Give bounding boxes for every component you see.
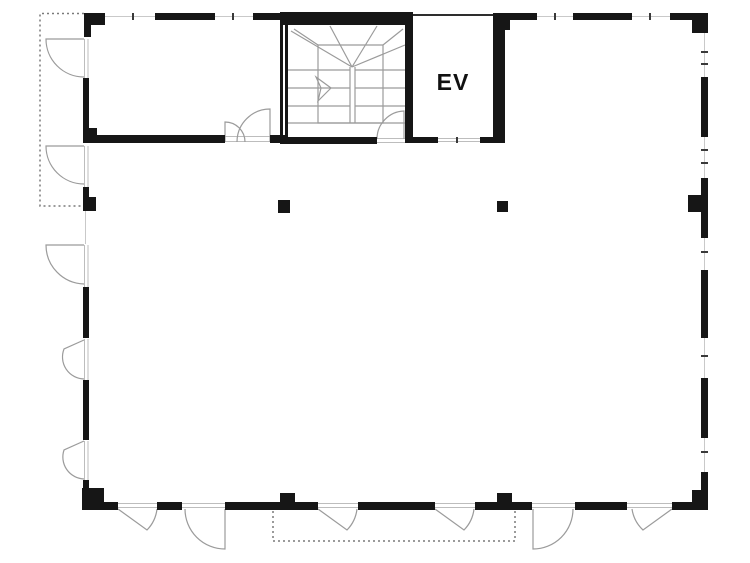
stairs-symbol	[288, 26, 405, 123]
elevator-label: EV	[437, 69, 470, 95]
window-tick-marks	[133, 13, 708, 452]
door-swing-left-3	[46, 245, 84, 284]
stair-treads	[288, 67, 405, 123]
door-swing-corridor-large	[237, 109, 270, 142]
setback-outline-bottom	[273, 511, 515, 541]
floor-plan-canvas: EV	[0, 0, 750, 563]
door-swing-bottom-1	[118, 509, 157, 530]
door-jamb-lines	[85, 39, 673, 508]
door-swing-left-1	[46, 39, 84, 77]
door-swing-bottom-6	[632, 509, 672, 530]
window-glazing-lines	[86, 17, 705, 473]
door-swing-left-2	[46, 146, 84, 184]
door-swings	[46, 39, 672, 549]
door-swing-left-5	[63, 441, 84, 479]
structural-columns	[83, 128, 708, 508]
door-swing-left-4	[62, 340, 84, 379]
door-swing-bottom-3	[318, 509, 357, 530]
stair-winder-fan-lines	[291, 26, 405, 67]
door-swing-bottom-4	[435, 509, 474, 530]
door-swing-bottom-2	[185, 509, 225, 549]
door-swing-bottom-5	[533, 509, 573, 549]
door-swing-stairwell	[377, 111, 404, 139]
exterior-walls	[82, 12, 708, 510]
floor-plan-page: EV	[0, 0, 750, 563]
